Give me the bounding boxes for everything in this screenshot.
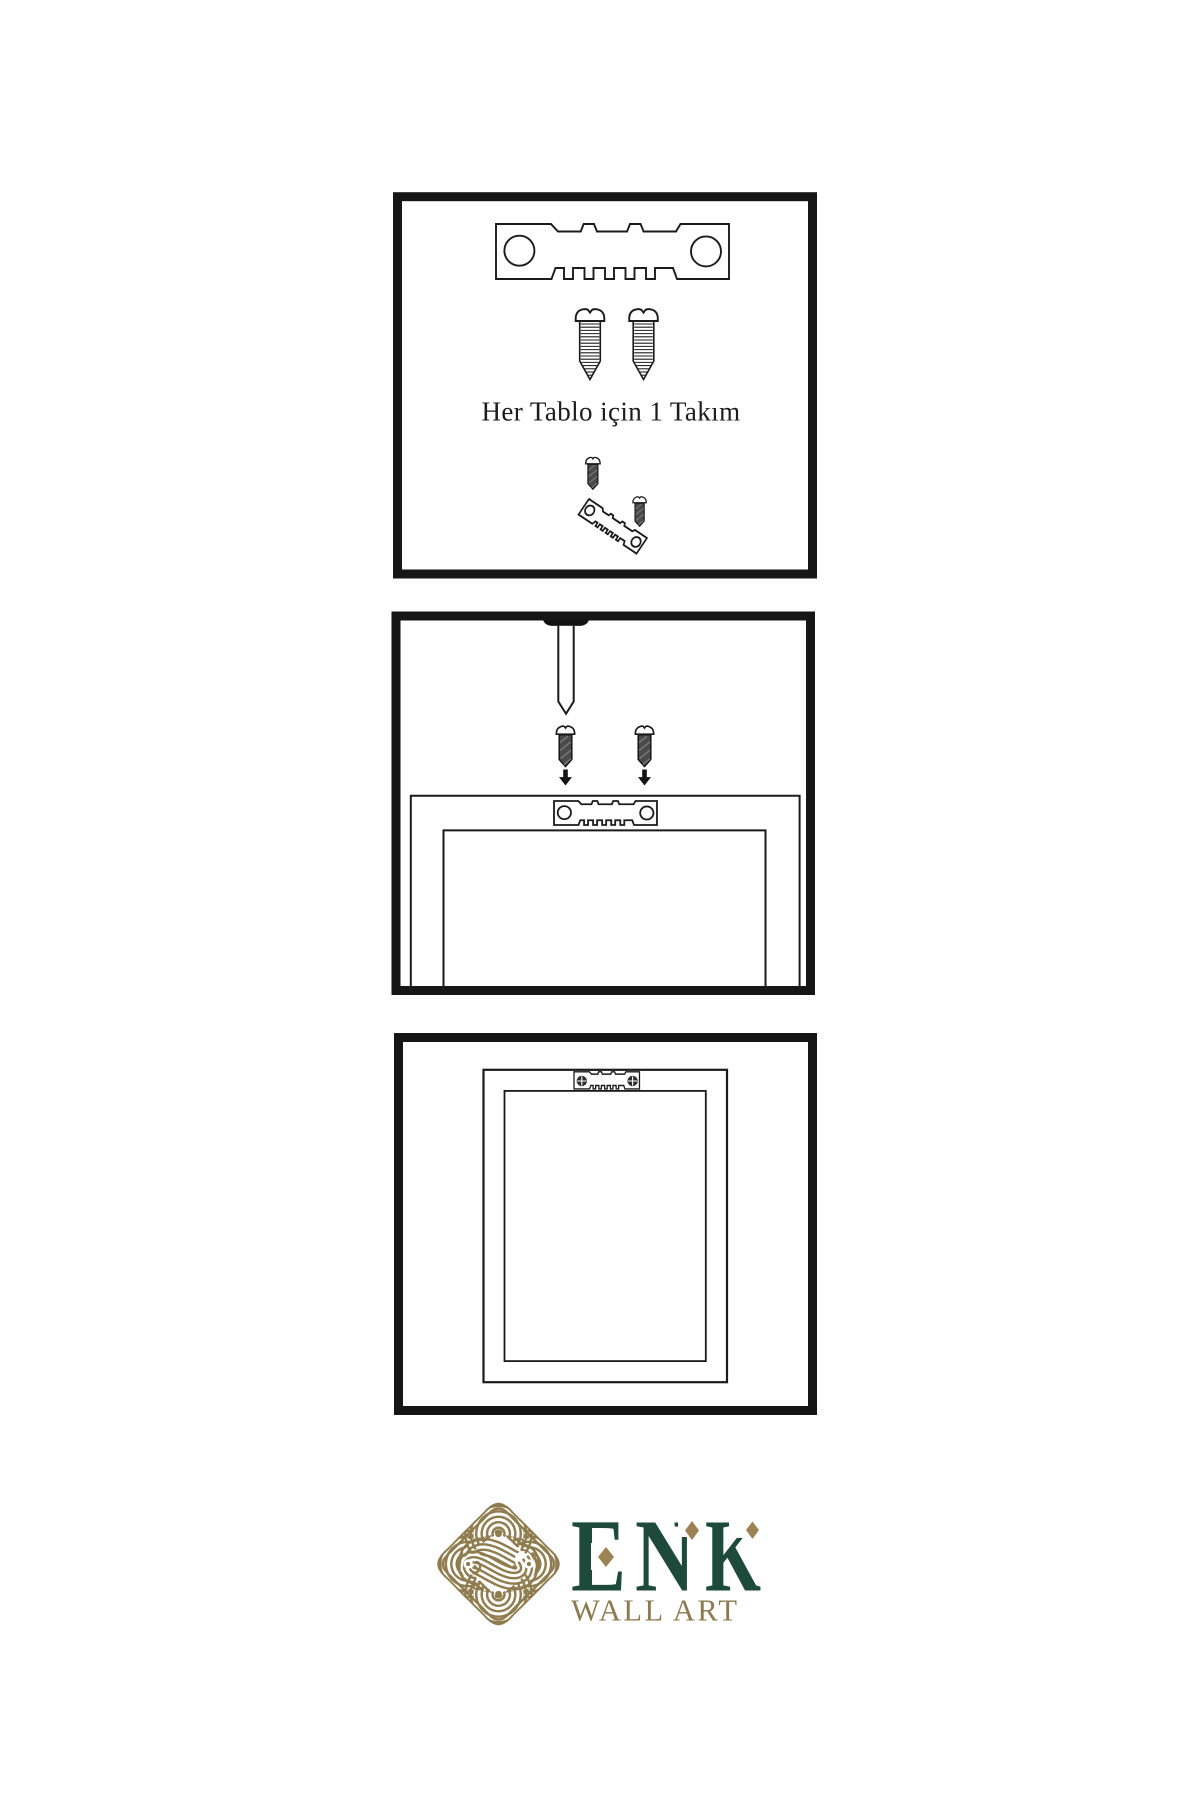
svg-text:Her Tablo için 1 Takım: Her Tablo için 1 Takım xyxy=(482,397,741,427)
svg-text:WALL ART: WALL ART xyxy=(571,1594,739,1628)
